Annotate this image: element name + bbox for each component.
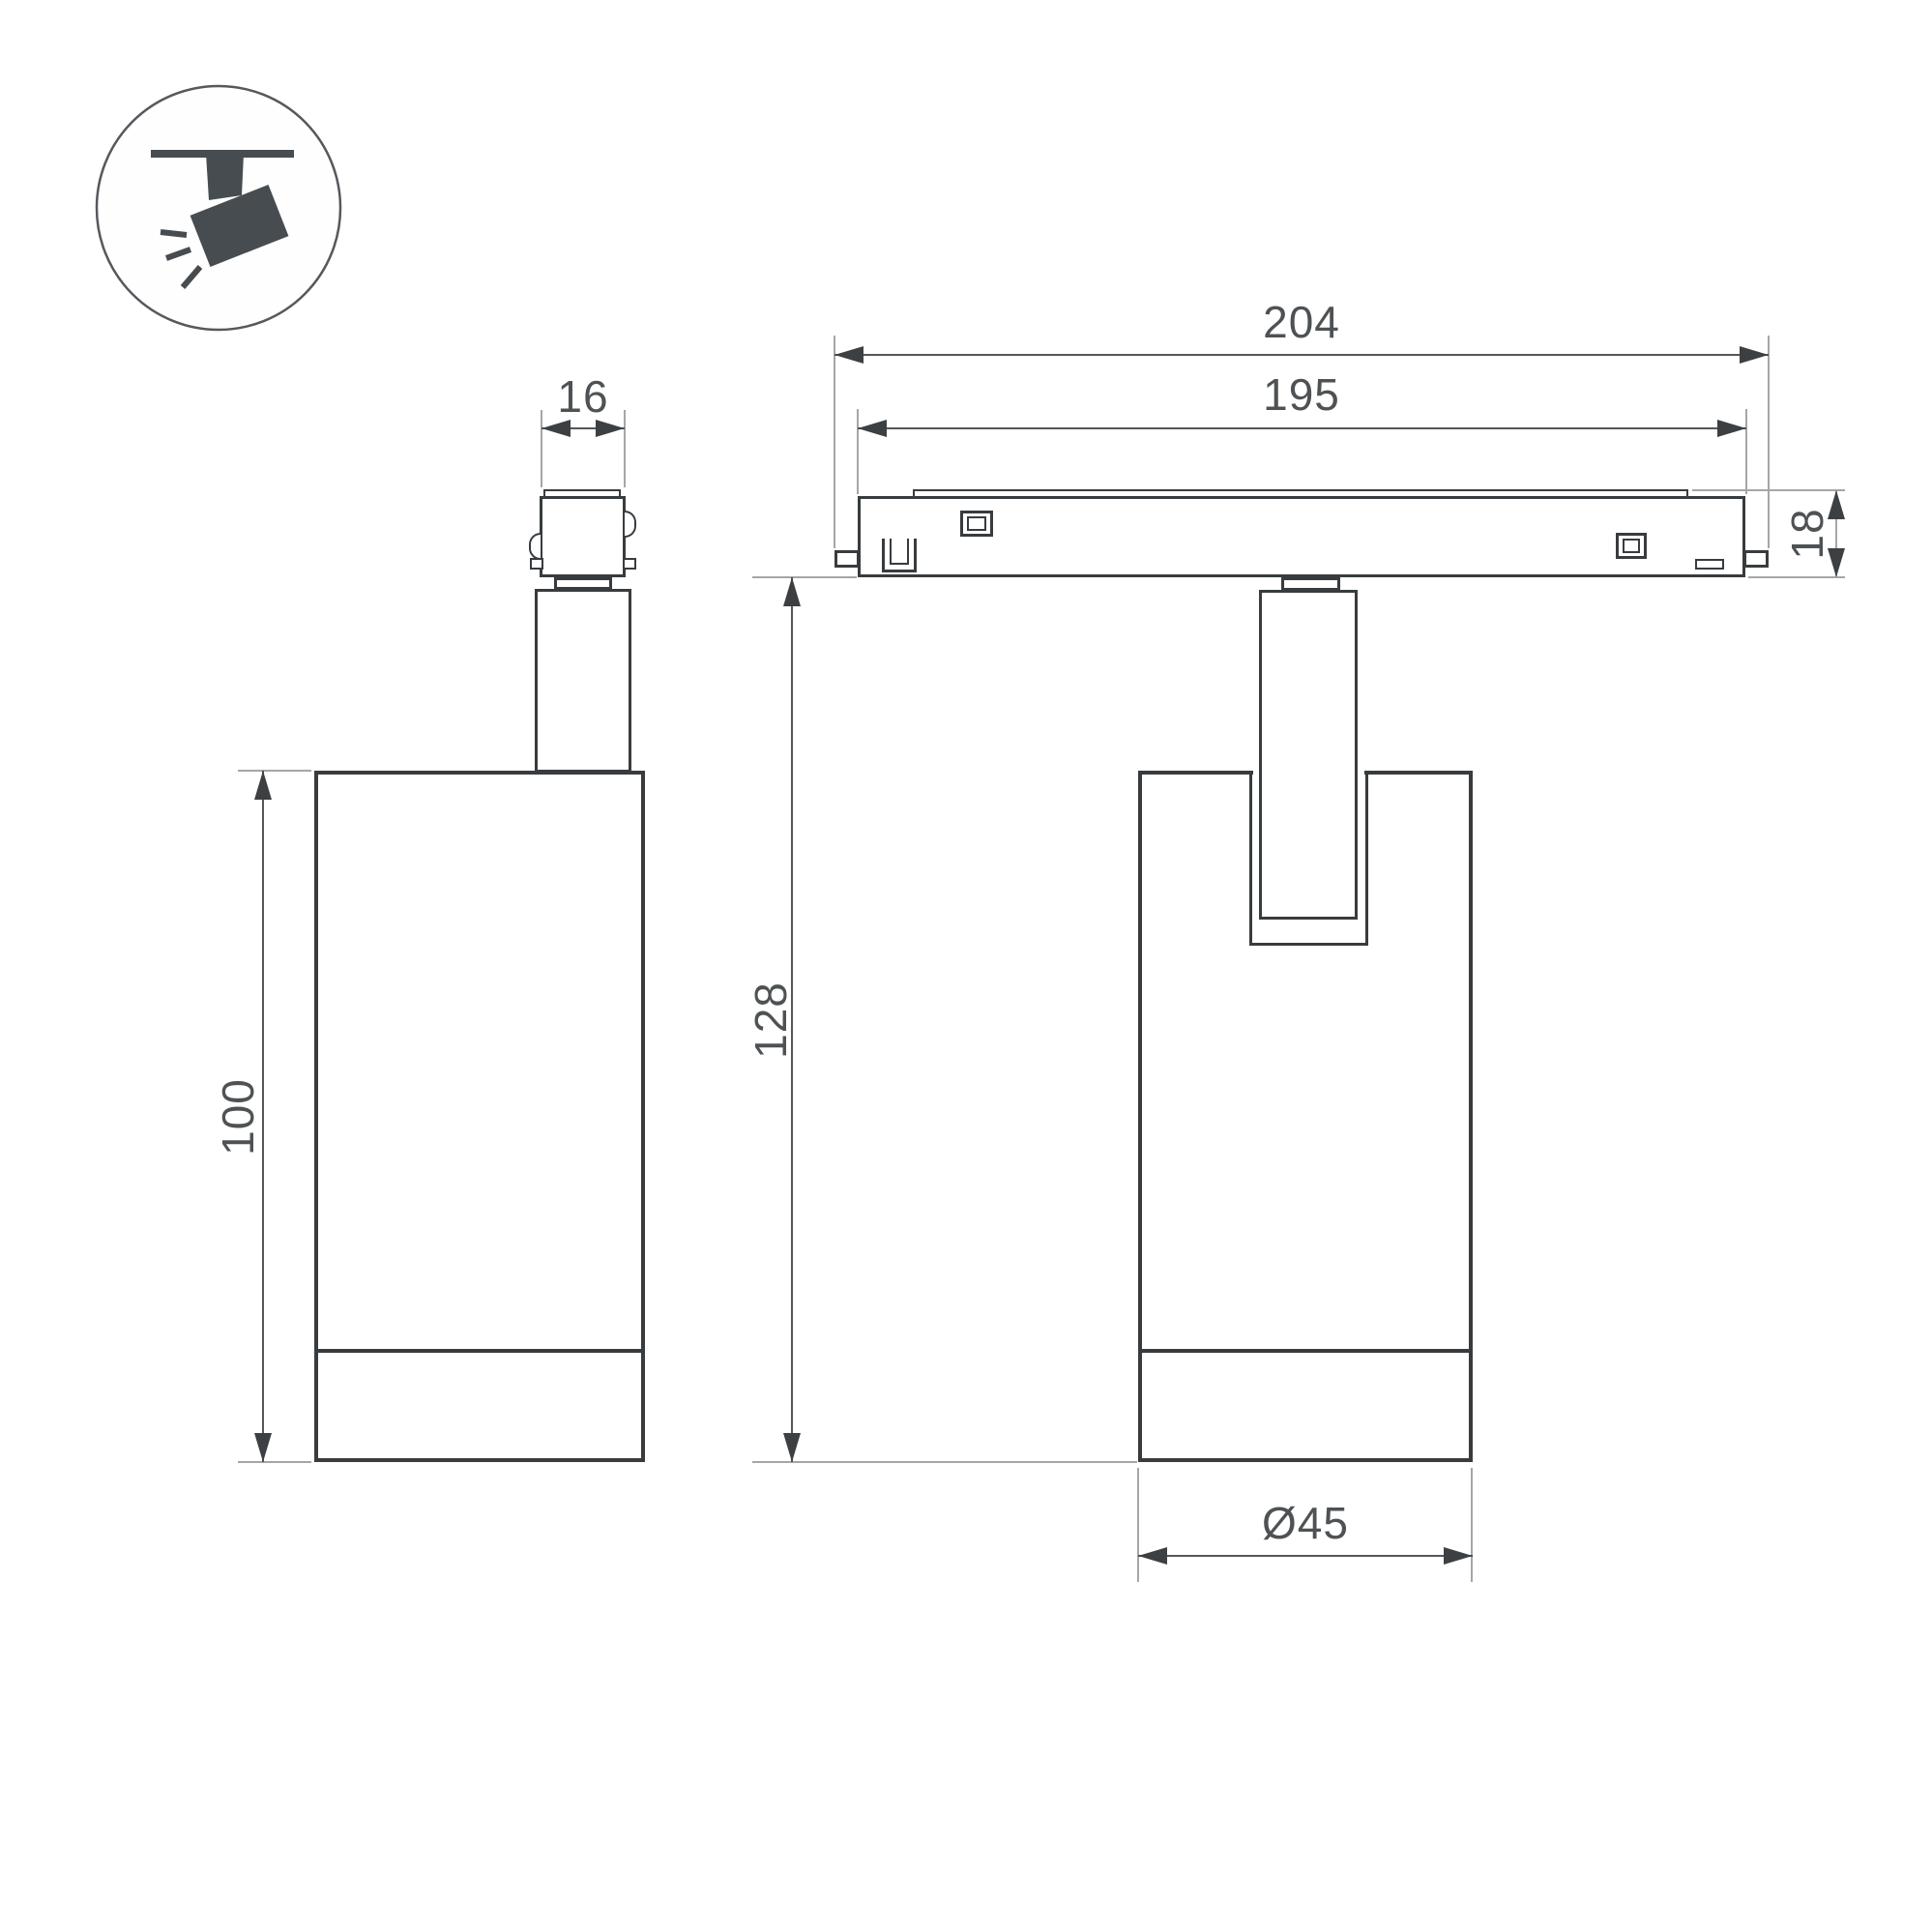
side-track-connector bbox=[540, 496, 626, 577]
dim195-arrow-right bbox=[1717, 420, 1746, 437]
dim100-ext-top bbox=[238, 770, 311, 772]
dim204-ext-right bbox=[1768, 336, 1770, 548]
dim100-ext-bottom bbox=[238, 1461, 311, 1463]
dim16-label: 16 bbox=[557, 374, 608, 419]
dim45-ext-right bbox=[1471, 1468, 1473, 1582]
dim195-label: 195 bbox=[1263, 372, 1340, 417]
side-lens-ring-line bbox=[314, 1349, 645, 1353]
icon-mount-stem bbox=[206, 154, 244, 200]
dim100-arrow-down bbox=[254, 1433, 272, 1462]
dim128-ext-top bbox=[752, 576, 857, 578]
dim195-line bbox=[858, 427, 1746, 429]
dim204-line bbox=[834, 354, 1769, 356]
track-contact-clip-inner bbox=[890, 539, 909, 565]
track-left-magnet-slot bbox=[960, 511, 993, 537]
dim18-ext-top bbox=[1692, 489, 1845, 491]
dim45-arrow-left bbox=[1138, 1547, 1167, 1565]
technical-drawing-canvas: 16 204 195 18 100 bbox=[0, 0, 1932, 1932]
front-spot-body bbox=[1138, 771, 1473, 1462]
dim204-label: 204 bbox=[1263, 300, 1340, 344]
front-pivot-neck bbox=[1281, 577, 1340, 591]
dim45-label: Ø45 bbox=[1262, 1501, 1349, 1545]
dim128-ext-bottom bbox=[752, 1461, 1137, 1463]
side-right-hinge-knob bbox=[625, 511, 636, 538]
track-right-magnet-slot-inner bbox=[1623, 539, 1640, 553]
side-left-lug bbox=[530, 558, 543, 570]
side-right-lug bbox=[623, 558, 636, 570]
track-left-end-tab bbox=[834, 550, 860, 568]
track-right-end-tab bbox=[1743, 550, 1769, 568]
track-rail-body bbox=[858, 496, 1745, 577]
dim204-ext-left bbox=[834, 336, 835, 548]
track-right-magnet-slot bbox=[1616, 533, 1647, 559]
dim128-label: 128 bbox=[748, 981, 793, 1059]
dim204-arrow-left bbox=[834, 346, 864, 364]
dim45-ext-left bbox=[1137, 1468, 1139, 1582]
dim45-line bbox=[1138, 1555, 1473, 1557]
track-right-contact-pad bbox=[1695, 559, 1724, 570]
front-lens-ring-line bbox=[1138, 1349, 1473, 1353]
dim45-arrow-right bbox=[1444, 1547, 1473, 1565]
dim100-arrow-up bbox=[254, 771, 272, 800]
track-left-magnet-slot-inner bbox=[967, 516, 986, 531]
dim128-arrow-down bbox=[783, 1433, 801, 1462]
dim204-arrow-right bbox=[1740, 346, 1769, 364]
dim195-arrow-left bbox=[858, 420, 887, 437]
dim16-arrow-left bbox=[542, 420, 571, 437]
side-left-hinge-knob bbox=[529, 533, 541, 560]
ceiling-track-spotlight-icon bbox=[0, 0, 387, 387]
track-contact-clip bbox=[882, 539, 917, 572]
dim18-label: 18 bbox=[1785, 508, 1830, 559]
side-spot-body bbox=[314, 771, 645, 1462]
dim128-arrow-up bbox=[783, 577, 801, 606]
dim100-label: 100 bbox=[216, 1078, 260, 1156]
side-pivot-stem bbox=[535, 589, 631, 773]
dim16-arrow-right bbox=[596, 420, 625, 437]
